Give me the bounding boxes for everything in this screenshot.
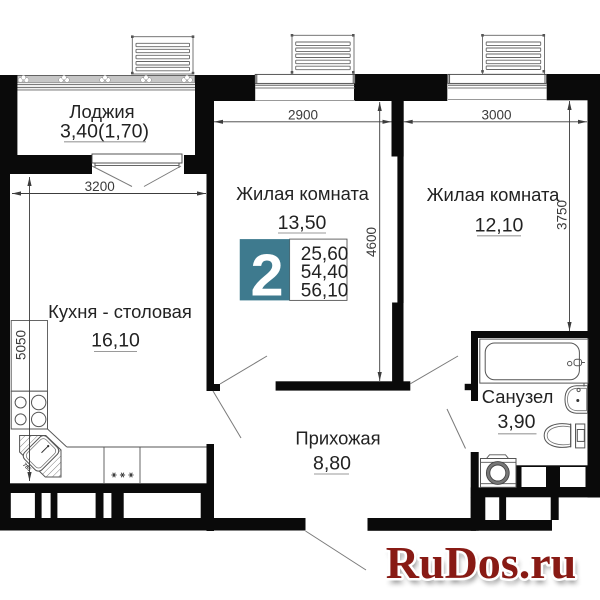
svg-text:Санузел: Санузел (482, 386, 554, 407)
svg-text:12,10: 12,10 (475, 215, 524, 237)
svg-text:Жилая комната: Жилая комната (236, 183, 370, 204)
svg-text:RuDos.ru: RuDos.ru (386, 537, 576, 588)
svg-text:5050: 5050 (14, 330, 29, 360)
svg-text:Жилая комната: Жилая комната (427, 184, 561, 205)
svg-text:3,90: 3,90 (498, 411, 536, 433)
svg-text:13,50: 13,50 (278, 212, 327, 234)
svg-text:3,40(1,70): 3,40(1,70) (60, 121, 149, 143)
svg-text:Прихожая: Прихожая (295, 428, 380, 449)
svg-text:Кухня - столовая: Кухня - столовая (48, 301, 192, 322)
svg-text:2900: 2900 (288, 107, 318, 122)
svg-text:2: 2 (250, 242, 283, 309)
svg-text:3200: 3200 (85, 179, 115, 194)
svg-text:3000: 3000 (481, 107, 511, 122)
svg-text:56,10: 56,10 (301, 281, 349, 302)
svg-text:4600: 4600 (364, 227, 379, 257)
svg-text:Лоджия: Лоджия (69, 101, 134, 122)
svg-text:8,80: 8,80 (313, 453, 351, 475)
svg-text:16,10: 16,10 (91, 330, 140, 352)
